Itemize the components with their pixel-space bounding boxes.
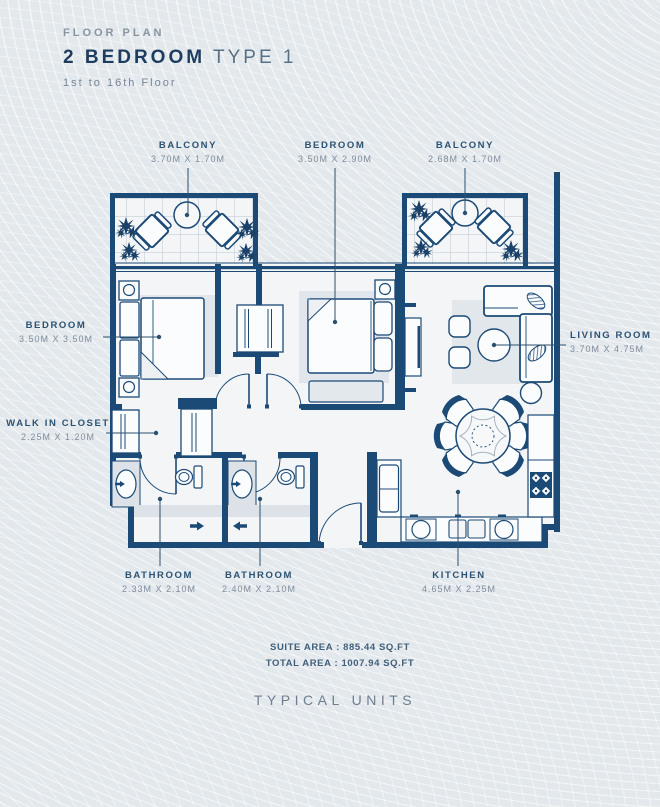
room-label-balcony-right: BALCONY 2.68M X 1.70M bbox=[395, 141, 535, 164]
area-summary: SUITE AREA : 885.44 SQ.FT TOTAL AREA : 1… bbox=[235, 642, 445, 674]
room-label-walk-in-closet: WALK IN CLOSET 2.25M X 1.20M bbox=[6, 419, 110, 442]
room-name: BATHROOM bbox=[109, 571, 209, 581]
total-area-text: TOTAL AREA : 1007.94 SQ.FT bbox=[235, 658, 445, 669]
room-dims: 2.25M X 1.20M bbox=[6, 433, 110, 442]
room-label-kitchen: KITCHEN 4.65M X 2.25M bbox=[409, 571, 509, 594]
room-dims: 4.65M X 2.25M bbox=[409, 585, 509, 594]
room-name: KITCHEN bbox=[409, 571, 509, 581]
room-dims: 3.70M X 1.70M bbox=[118, 155, 258, 164]
room-label-balcony-left: BALCONY 3.70M X 1.70M bbox=[118, 141, 258, 164]
room-dims: 2.68M X 1.70M bbox=[395, 155, 535, 164]
room-dims: 3.50M X 3.50M bbox=[8, 335, 104, 344]
floor-plan-drawing bbox=[0, 0, 660, 807]
room-label-bathroom-2: BATHROOM 2.40M X 2.10M bbox=[209, 571, 309, 594]
room-dims: 3.70M X 4.75M bbox=[570, 345, 660, 354]
bedroom-2-furniture bbox=[308, 280, 395, 402]
room-name: BALCONY bbox=[118, 141, 258, 151]
room-name: BATHROOM bbox=[209, 571, 309, 581]
room-name: LIVING ROOM bbox=[570, 331, 660, 341]
room-label-bathroom-1: BATHROOM 2.33M X 2.10M bbox=[109, 571, 209, 594]
room-dims: 2.40M X 2.10M bbox=[209, 585, 309, 594]
room-dims: 3.50M X 2.90M bbox=[265, 155, 405, 164]
room-label-bedroom-left: BEDROOM 3.50M X 3.50M bbox=[8, 321, 104, 344]
room-dims: 2.33M X 2.10M bbox=[109, 585, 209, 594]
room-name: WALK IN CLOSET bbox=[6, 419, 110, 429]
room-name: BEDROOM bbox=[8, 321, 104, 331]
room-name: BALCONY bbox=[395, 141, 535, 151]
typical-units-label: TYPICAL UNITS bbox=[175, 692, 495, 708]
room-label-living-room: LIVING ROOM 3.70M X 4.75M bbox=[570, 331, 660, 354]
stove-icon bbox=[530, 472, 552, 498]
suite-area-text: SUITE AREA : 885.44 SQ.FT bbox=[235, 642, 445, 653]
room-name: BEDROOM bbox=[265, 141, 405, 151]
room-label-bedroom-top: BEDROOM 3.50M X 2.90M bbox=[265, 141, 405, 164]
floor-plan-page: FLOOR PLAN 2 BEDROOM TYPE 1 1st to 16th … bbox=[0, 0, 660, 807]
